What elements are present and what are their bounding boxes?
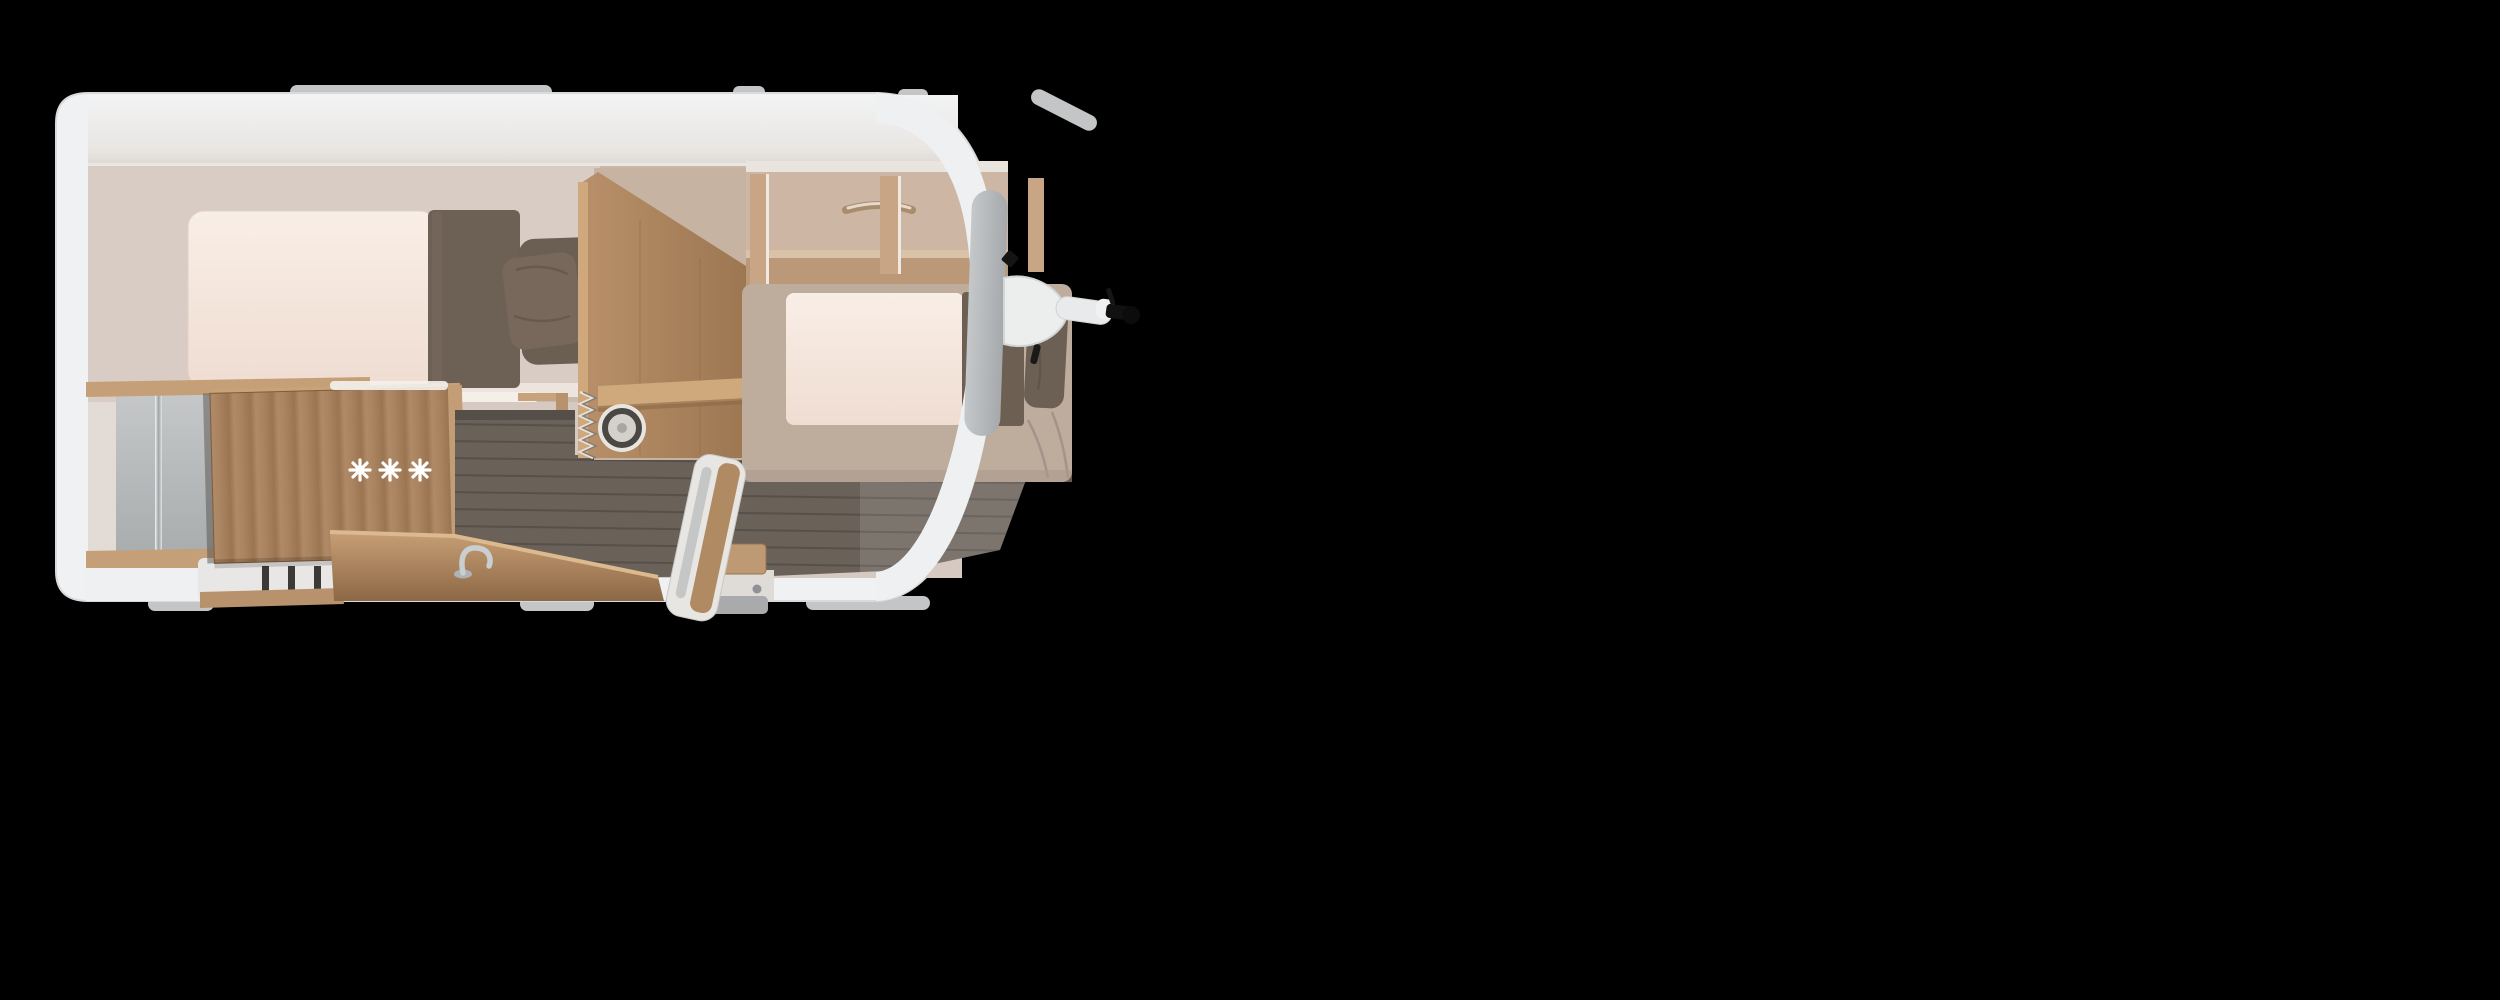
- rear-bedroom: [88, 166, 604, 414]
- shower-wall: [116, 386, 216, 566]
- blanket-fold: [432, 212, 442, 386]
- front-mattress: [786, 293, 964, 425]
- mattress: [188, 211, 436, 387]
- top-wall: [88, 95, 958, 167]
- sink-drain: [617, 423, 627, 433]
- wardrobe: [578, 168, 746, 460]
- lower-wall: [86, 568, 206, 601]
- door-hinge: [753, 585, 762, 594]
- divider-edge: [898, 176, 901, 274]
- led-strip: [330, 381, 448, 390]
- scene-background: [0, 0, 2500, 1000]
- base-shadow: [742, 470, 1072, 482]
- divider: [1028, 178, 1044, 272]
- divider: [880, 176, 900, 274]
- round-sink: [598, 404, 646, 452]
- caravan-floorplan: [0, 0, 2500, 1000]
- shower-rail-icon: [155, 390, 162, 562]
- coupler-head: [1122, 306, 1140, 324]
